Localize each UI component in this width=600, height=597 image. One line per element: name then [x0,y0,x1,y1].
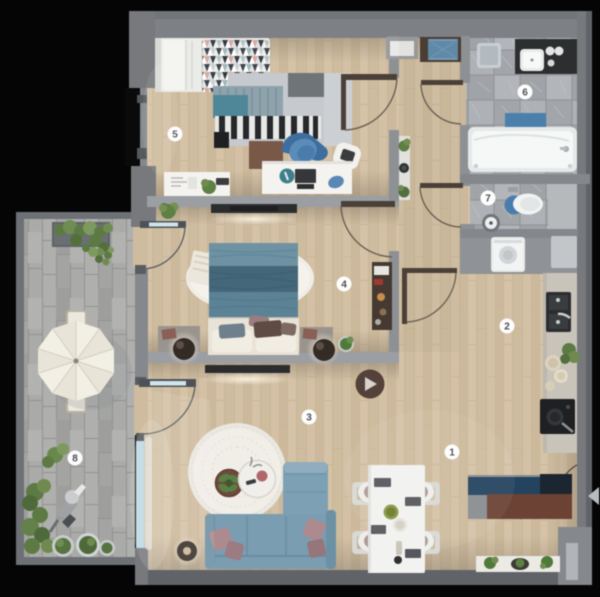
svg-text:7: 7 [485,194,491,205]
svg-text:3: 3 [306,413,312,424]
svg-text:4: 4 [341,280,347,291]
svg-text:8: 8 [72,454,78,465]
svg-text:2: 2 [504,322,510,333]
svg-text:6: 6 [522,88,528,99]
